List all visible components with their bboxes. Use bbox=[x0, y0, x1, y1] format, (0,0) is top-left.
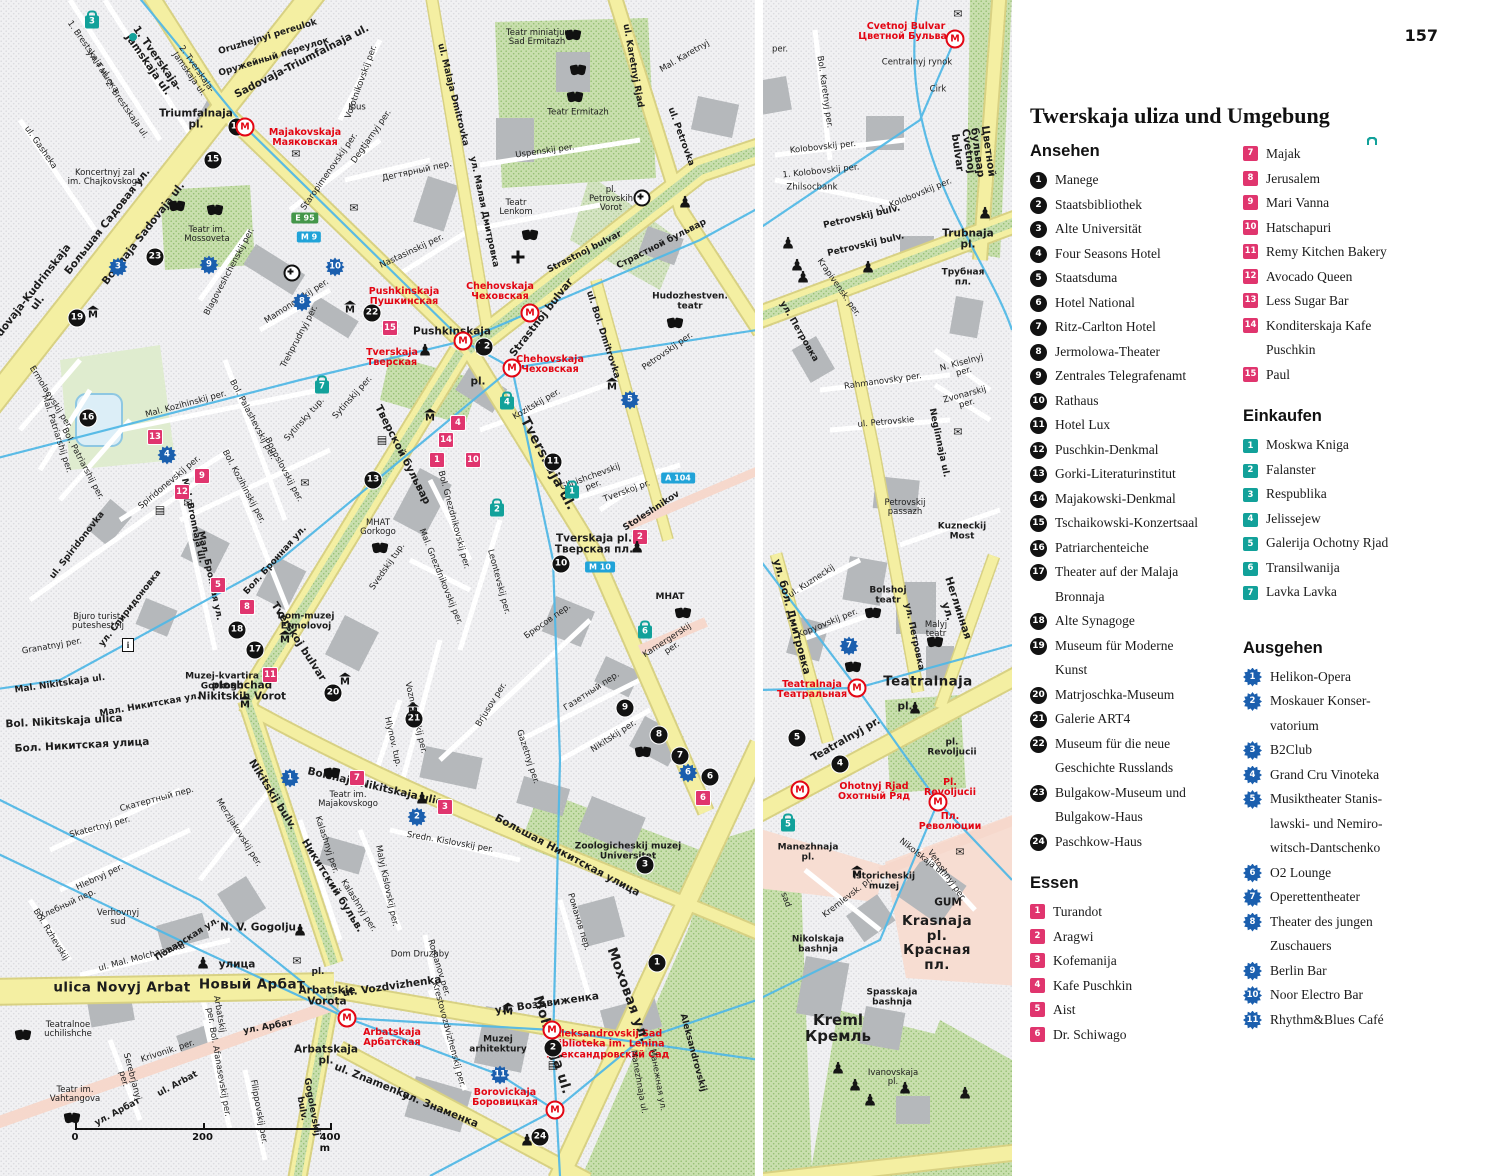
map-panel-right[interactable] bbox=[763, 0, 1012, 1176]
legend-section-continued: 7Majak8Jerusalem9Mari Vanna10Hatschapuri… bbox=[1243, 142, 1500, 387]
legend-item-label: Alte Synagoge bbox=[1055, 609, 1135, 634]
guidebook-map-page: 1. Tverskaja- Jamskaja ul.2. Tverskaja- … bbox=[0, 0, 1500, 1176]
legend-item: 7Majak bbox=[1243, 142, 1500, 167]
shop-marker-4: 4 bbox=[1243, 513, 1258, 527]
sight-marker-5: 5 bbox=[1030, 270, 1047, 287]
legend-item: 1Manege bbox=[1030, 168, 1240, 193]
legend-item: 4Four Seasons Hotel bbox=[1030, 242, 1240, 267]
legend-item: 13Less Sugar Bar bbox=[1243, 289, 1500, 314]
sight-marker-9: 9 bbox=[1030, 368, 1047, 385]
legend-item-label: Lavka Lavka bbox=[1266, 580, 1337, 605]
legend-item: 13Gorki-Literaturinstitut bbox=[1030, 462, 1240, 487]
legend-item-label: Kofemanija bbox=[1053, 949, 1117, 974]
legend-item-label: Staatsbibliothek bbox=[1055, 193, 1142, 218]
legend-item: 10Noor Electro Bar bbox=[1243, 983, 1500, 1008]
sight-marker-1: 1 bbox=[1030, 172, 1047, 189]
shop-marker-3: 3 bbox=[1243, 488, 1258, 502]
legend-item: 14Majakowski-Denkmal bbox=[1030, 487, 1240, 512]
legend-item-label: Ritz-Carlton Hotel bbox=[1055, 315, 1156, 340]
food-marker-14: 14 bbox=[1243, 318, 1258, 333]
legend-item: 2Staatsbibliothek bbox=[1030, 193, 1240, 218]
legend-item-label: Hotel Lux bbox=[1055, 413, 1110, 438]
legend-item: 24Paschkow-Haus bbox=[1030, 830, 1240, 855]
food-marker-10: 10 bbox=[1243, 220, 1258, 235]
legend-item-label: Manege bbox=[1055, 168, 1098, 193]
sight-marker-19: 19 bbox=[1030, 638, 1047, 655]
legend-item-label: Jermolowa-Theater bbox=[1055, 340, 1160, 365]
legend-item: 6O2 Lounge bbox=[1243, 861, 1500, 886]
sight-marker-6: 6 bbox=[1030, 295, 1047, 312]
sight-marker-3: 3 bbox=[1030, 221, 1047, 238]
legend-section-title: Ansehen bbox=[1030, 142, 1240, 161]
legend-item-label: Zentrales Telegrafenamt bbox=[1055, 364, 1186, 389]
sight-marker-12: 12 bbox=[1030, 442, 1047, 459]
legend-item-label: Remy Kitchen Bakery bbox=[1266, 240, 1387, 265]
legend-section-essen: Essen1Turandot2Aragwi3Kofemanija4Kafe Pu… bbox=[1030, 874, 1240, 1047]
legend-item: 15Tschaikowski-Konzertsaal bbox=[1030, 511, 1240, 536]
sight-marker-21: 21 bbox=[1030, 711, 1047, 728]
legend-section-ausgehen: Ausgehen1Helikon-Opera2Moskauer Konser- … bbox=[1243, 639, 1500, 1033]
legend-item: 10Rathaus bbox=[1030, 389, 1240, 414]
legend-item-label: Mari Vanna bbox=[1266, 191, 1329, 216]
legend-item: 3Respublika bbox=[1243, 482, 1500, 507]
legend-item-label: Puschkin-Denkmal bbox=[1055, 438, 1159, 463]
legend-item-label: Respublika bbox=[1266, 482, 1327, 507]
legend-item-label: Bulgakow-Museum und Bulgakow-Haus bbox=[1055, 781, 1186, 830]
legend-item-label: Moskwa Kniga bbox=[1266, 433, 1349, 458]
legend-item-label: Theater des jungen Zuschauers bbox=[1270, 910, 1373, 959]
legend-item-label: Aist bbox=[1053, 998, 1076, 1023]
legend-item: 6Dr. Schiwago bbox=[1030, 1023, 1240, 1048]
legend-item: 12Puschkin-Denkmal bbox=[1030, 438, 1240, 463]
legend-item-label: Patriarchenteiche bbox=[1055, 536, 1149, 561]
sight-marker-16: 16 bbox=[1030, 540, 1047, 557]
food-marker-7: 7 bbox=[1243, 146, 1258, 161]
food-marker-3: 3 bbox=[1030, 953, 1045, 968]
legend-item: 2Moskauer Konser- vatorium bbox=[1243, 689, 1500, 738]
legend-item: 3Kofemanija bbox=[1030, 949, 1240, 974]
legend-section-einkaufen: Einkaufen1Moskwa Kniga2Falanster3Respubl… bbox=[1243, 407, 1500, 605]
legend-item: 9Berlin Bar bbox=[1243, 959, 1500, 984]
go-marker-6: 6 bbox=[1243, 864, 1262, 883]
food-marker-12: 12 bbox=[1243, 269, 1258, 284]
legend-item: 1Turandot bbox=[1030, 900, 1240, 925]
go-marker-2: 2 bbox=[1243, 692, 1262, 711]
go-marker-3: 3 bbox=[1243, 741, 1262, 760]
legend-item-label: Tschaikowski-Konzertsaal bbox=[1055, 511, 1198, 536]
legend-item: 5Staatsduma bbox=[1030, 266, 1240, 291]
legend-item-label: Alte Universität bbox=[1055, 217, 1142, 242]
legend-item: 19Museum für Moderne Kunst bbox=[1030, 634, 1240, 683]
legend-item: 21Galerie ART4 bbox=[1030, 707, 1240, 732]
sight-marker-22: 22 bbox=[1030, 736, 1047, 753]
legend-item-label: Galerija Ochotny Rjad bbox=[1266, 531, 1388, 556]
legend-item: 1Moskwa Kniga bbox=[1243, 433, 1500, 458]
legend-item-label: Hotel National bbox=[1055, 291, 1135, 316]
legend-item: 4Kafe Puschkin bbox=[1030, 974, 1240, 999]
food-marker-9: 9 bbox=[1243, 195, 1258, 210]
legend-item: 23Bulgakow-Museum und Bulgakow-Haus bbox=[1030, 781, 1240, 830]
go-marker-4: 4 bbox=[1243, 766, 1262, 785]
go-marker-9: 9 bbox=[1243, 962, 1262, 981]
page-title: Twerskaja uliza und Umgebung bbox=[1030, 103, 1330, 129]
sight-marker-23: 23 bbox=[1030, 785, 1047, 802]
legend-item: 9Zentrales Telegrafenamt bbox=[1030, 364, 1240, 389]
legend-item-label: Majak bbox=[1266, 142, 1301, 167]
shop-marker-7: 7 bbox=[1243, 586, 1258, 600]
legend-item-label: Avocado Queen bbox=[1266, 265, 1352, 290]
legend-panel: 157 Twerskaja uliza und Umgebung Ansehen… bbox=[1012, 0, 1500, 1176]
legend-item: 10Hatschapuri bbox=[1243, 216, 1500, 241]
legend-item-label: Aragwi bbox=[1053, 925, 1094, 950]
legend-item-label: Galerie ART4 bbox=[1055, 707, 1130, 732]
legend-item: 8Jermolowa-Theater bbox=[1030, 340, 1240, 365]
legend-item-label: Helikon-Opera bbox=[1270, 665, 1351, 690]
legend-item-label: Transilwanija bbox=[1266, 556, 1340, 581]
legend-item-label: Museum für die neue Geschichte Russlands bbox=[1055, 732, 1173, 781]
legend-item: 4Jelissejew bbox=[1243, 507, 1500, 532]
legend-item-label: Rathaus bbox=[1055, 389, 1099, 414]
legend-item: 3Alte Universität bbox=[1030, 217, 1240, 242]
legend-item-label: Grand Cru Vinoteka bbox=[1270, 763, 1379, 788]
food-marker-8: 8 bbox=[1243, 171, 1258, 186]
legend-item: 12Avocado Queen bbox=[1243, 265, 1500, 290]
sight-marker-7: 7 bbox=[1030, 319, 1047, 336]
legend-column-1: Ansehen1Manege2Staatsbibliothek3Alte Uni… bbox=[1030, 142, 1240, 1047]
sight-marker-13: 13 bbox=[1030, 466, 1047, 483]
food-marker-11: 11 bbox=[1243, 244, 1258, 259]
food-marker-6: 6 bbox=[1030, 1027, 1045, 1042]
legend-item: 8Jerusalem bbox=[1243, 167, 1500, 192]
legend-item-label: Musiktheater Stanis- lawski- und Nemiro-… bbox=[1270, 787, 1382, 861]
legend-item-label: Matrjoschka-Museum bbox=[1055, 683, 1174, 708]
legend-item-label: Staatsduma bbox=[1055, 266, 1117, 291]
legend-section-title: Einkaufen bbox=[1243, 407, 1500, 426]
legend-item: 3B2Club bbox=[1243, 738, 1500, 763]
map-panel-left[interactable] bbox=[0, 0, 755, 1176]
legend-item: 2Falanster bbox=[1243, 458, 1500, 483]
food-marker-1: 1 bbox=[1030, 904, 1045, 919]
legend-item-label: Berlin Bar bbox=[1270, 959, 1327, 984]
legend-item-label: Museum für Moderne Kunst bbox=[1055, 634, 1173, 683]
go-marker-5: 5 bbox=[1243, 790, 1262, 809]
sight-marker-8: 8 bbox=[1030, 344, 1047, 361]
legend-item: 1Helikon-Opera bbox=[1243, 665, 1500, 690]
shop-marker-6: 6 bbox=[1243, 562, 1258, 576]
legend-item-label: Hatschapuri bbox=[1266, 216, 1331, 241]
food-marker-2: 2 bbox=[1030, 929, 1045, 944]
legend-item: 11Rhythm&Blues Café bbox=[1243, 1008, 1500, 1033]
legend-item: 7Ritz-Carlton Hotel bbox=[1030, 315, 1240, 340]
shop-marker-1: 1 bbox=[1243, 439, 1258, 453]
legend-item: 7Operettentheater bbox=[1243, 885, 1500, 910]
legend-item-label: Paul bbox=[1266, 363, 1290, 388]
legend-item: 17Theater auf der Malaja Bronnaja bbox=[1030, 560, 1240, 609]
legend-item: 4Grand Cru Vinoteka bbox=[1243, 763, 1500, 788]
legend-item-label: Noor Electro Bar bbox=[1270, 983, 1363, 1008]
legend-item-label: Operettentheater bbox=[1270, 885, 1360, 910]
legend-item-label: Paschkow-Haus bbox=[1055, 830, 1142, 855]
legend-item-label: Rhythm&Blues Café bbox=[1270, 1008, 1384, 1033]
legend-item-label: Moskauer Konser- vatorium bbox=[1270, 689, 1371, 738]
legend-item-label: Majakowski-Denkmal bbox=[1055, 487, 1176, 512]
legend-item: 14Konditerskaja Kafe Puschkin bbox=[1243, 314, 1500, 363]
legend-item: 6Transilwanija bbox=[1243, 556, 1500, 581]
sight-marker-20: 20 bbox=[1030, 687, 1047, 704]
legend-item-label: O2 Lounge bbox=[1270, 861, 1331, 886]
legend-item-label: Jelissejew bbox=[1266, 507, 1321, 532]
legend-item: 11Remy Kitchen Bakery bbox=[1243, 240, 1500, 265]
food-marker-5: 5 bbox=[1030, 1002, 1045, 1017]
legend-item: 7Lavka Lavka bbox=[1243, 580, 1500, 605]
legend-item: 2Aragwi bbox=[1030, 925, 1240, 950]
legend-item: 8Theater des jungen Zuschauers bbox=[1243, 910, 1500, 959]
sight-marker-11: 11 bbox=[1030, 417, 1047, 434]
sight-marker-15: 15 bbox=[1030, 515, 1047, 532]
legend-column-2: 7Majak8Jerusalem9Mari Vanna10Hatschapuri… bbox=[1243, 142, 1500, 1032]
legend-item: 15Paul bbox=[1243, 363, 1500, 388]
shop-marker-2: 2 bbox=[1243, 464, 1258, 478]
sight-marker-10: 10 bbox=[1030, 393, 1047, 410]
go-marker-7: 7 bbox=[1243, 888, 1262, 907]
legend-item: 11Hotel Lux bbox=[1030, 413, 1240, 438]
legend-item-label: Konditerskaja Kafe Puschkin bbox=[1266, 314, 1371, 363]
legend-item: 9Mari Vanna bbox=[1243, 191, 1500, 216]
go-marker-10: 10 bbox=[1243, 986, 1262, 1005]
legend-item: 20Matrjoschka-Museum bbox=[1030, 683, 1240, 708]
go-marker-11: 11 bbox=[1243, 1011, 1262, 1030]
legend-item-label: Jerusalem bbox=[1266, 167, 1320, 192]
legend-item-label: Kafe Puschkin bbox=[1053, 974, 1132, 999]
sight-marker-17: 17 bbox=[1030, 564, 1047, 581]
legend-item: 16Patriarchenteiche bbox=[1030, 536, 1240, 561]
legend-item: 5Aist bbox=[1030, 998, 1240, 1023]
legend-item-label: Less Sugar Bar bbox=[1266, 289, 1348, 314]
food-marker-4: 4 bbox=[1030, 978, 1045, 993]
legend-item-label: Turandot bbox=[1053, 900, 1102, 925]
legend-item: 5Musiktheater Stanis- lawski- und Nemiro… bbox=[1243, 787, 1500, 861]
shop-marker-5: 5 bbox=[1243, 537, 1258, 551]
page-number: 157 bbox=[1405, 26, 1438, 45]
food-marker-15: 15 bbox=[1243, 367, 1258, 382]
legend-section-ansehen: Ansehen1Manege2Staatsbibliothek3Alte Uni… bbox=[1030, 142, 1240, 854]
sight-marker-14: 14 bbox=[1030, 491, 1047, 508]
legend-section-title: Ausgehen bbox=[1243, 639, 1500, 658]
go-marker-8: 8 bbox=[1243, 913, 1262, 932]
legend-item: 6Hotel National bbox=[1030, 291, 1240, 316]
legend-item: 22Museum für die neue Geschichte Russlan… bbox=[1030, 732, 1240, 781]
legend-item-label: Dr. Schiwago bbox=[1053, 1023, 1127, 1048]
legend-item: 5Galerija Ochotny Rjad bbox=[1243, 531, 1500, 556]
legend-item-label: Four Seasons Hotel bbox=[1055, 242, 1161, 267]
sight-marker-2: 2 bbox=[1030, 197, 1047, 214]
legend-item: 18Alte Synagoge bbox=[1030, 609, 1240, 634]
legend-item-label: Falanster bbox=[1266, 458, 1316, 483]
sight-marker-24: 24 bbox=[1030, 834, 1047, 851]
legend-item-label: Gorki-Literaturinstitut bbox=[1055, 462, 1176, 487]
sight-marker-4: 4 bbox=[1030, 246, 1047, 263]
sight-marker-18: 18 bbox=[1030, 613, 1047, 630]
legend-item-label: Theater auf der Malaja Bronnaja bbox=[1055, 560, 1178, 609]
food-marker-13: 13 bbox=[1243, 293, 1258, 308]
legend-item-label: B2Club bbox=[1270, 738, 1312, 763]
go-marker-1: 1 bbox=[1243, 668, 1262, 687]
legend-section-title: Essen bbox=[1030, 874, 1240, 893]
